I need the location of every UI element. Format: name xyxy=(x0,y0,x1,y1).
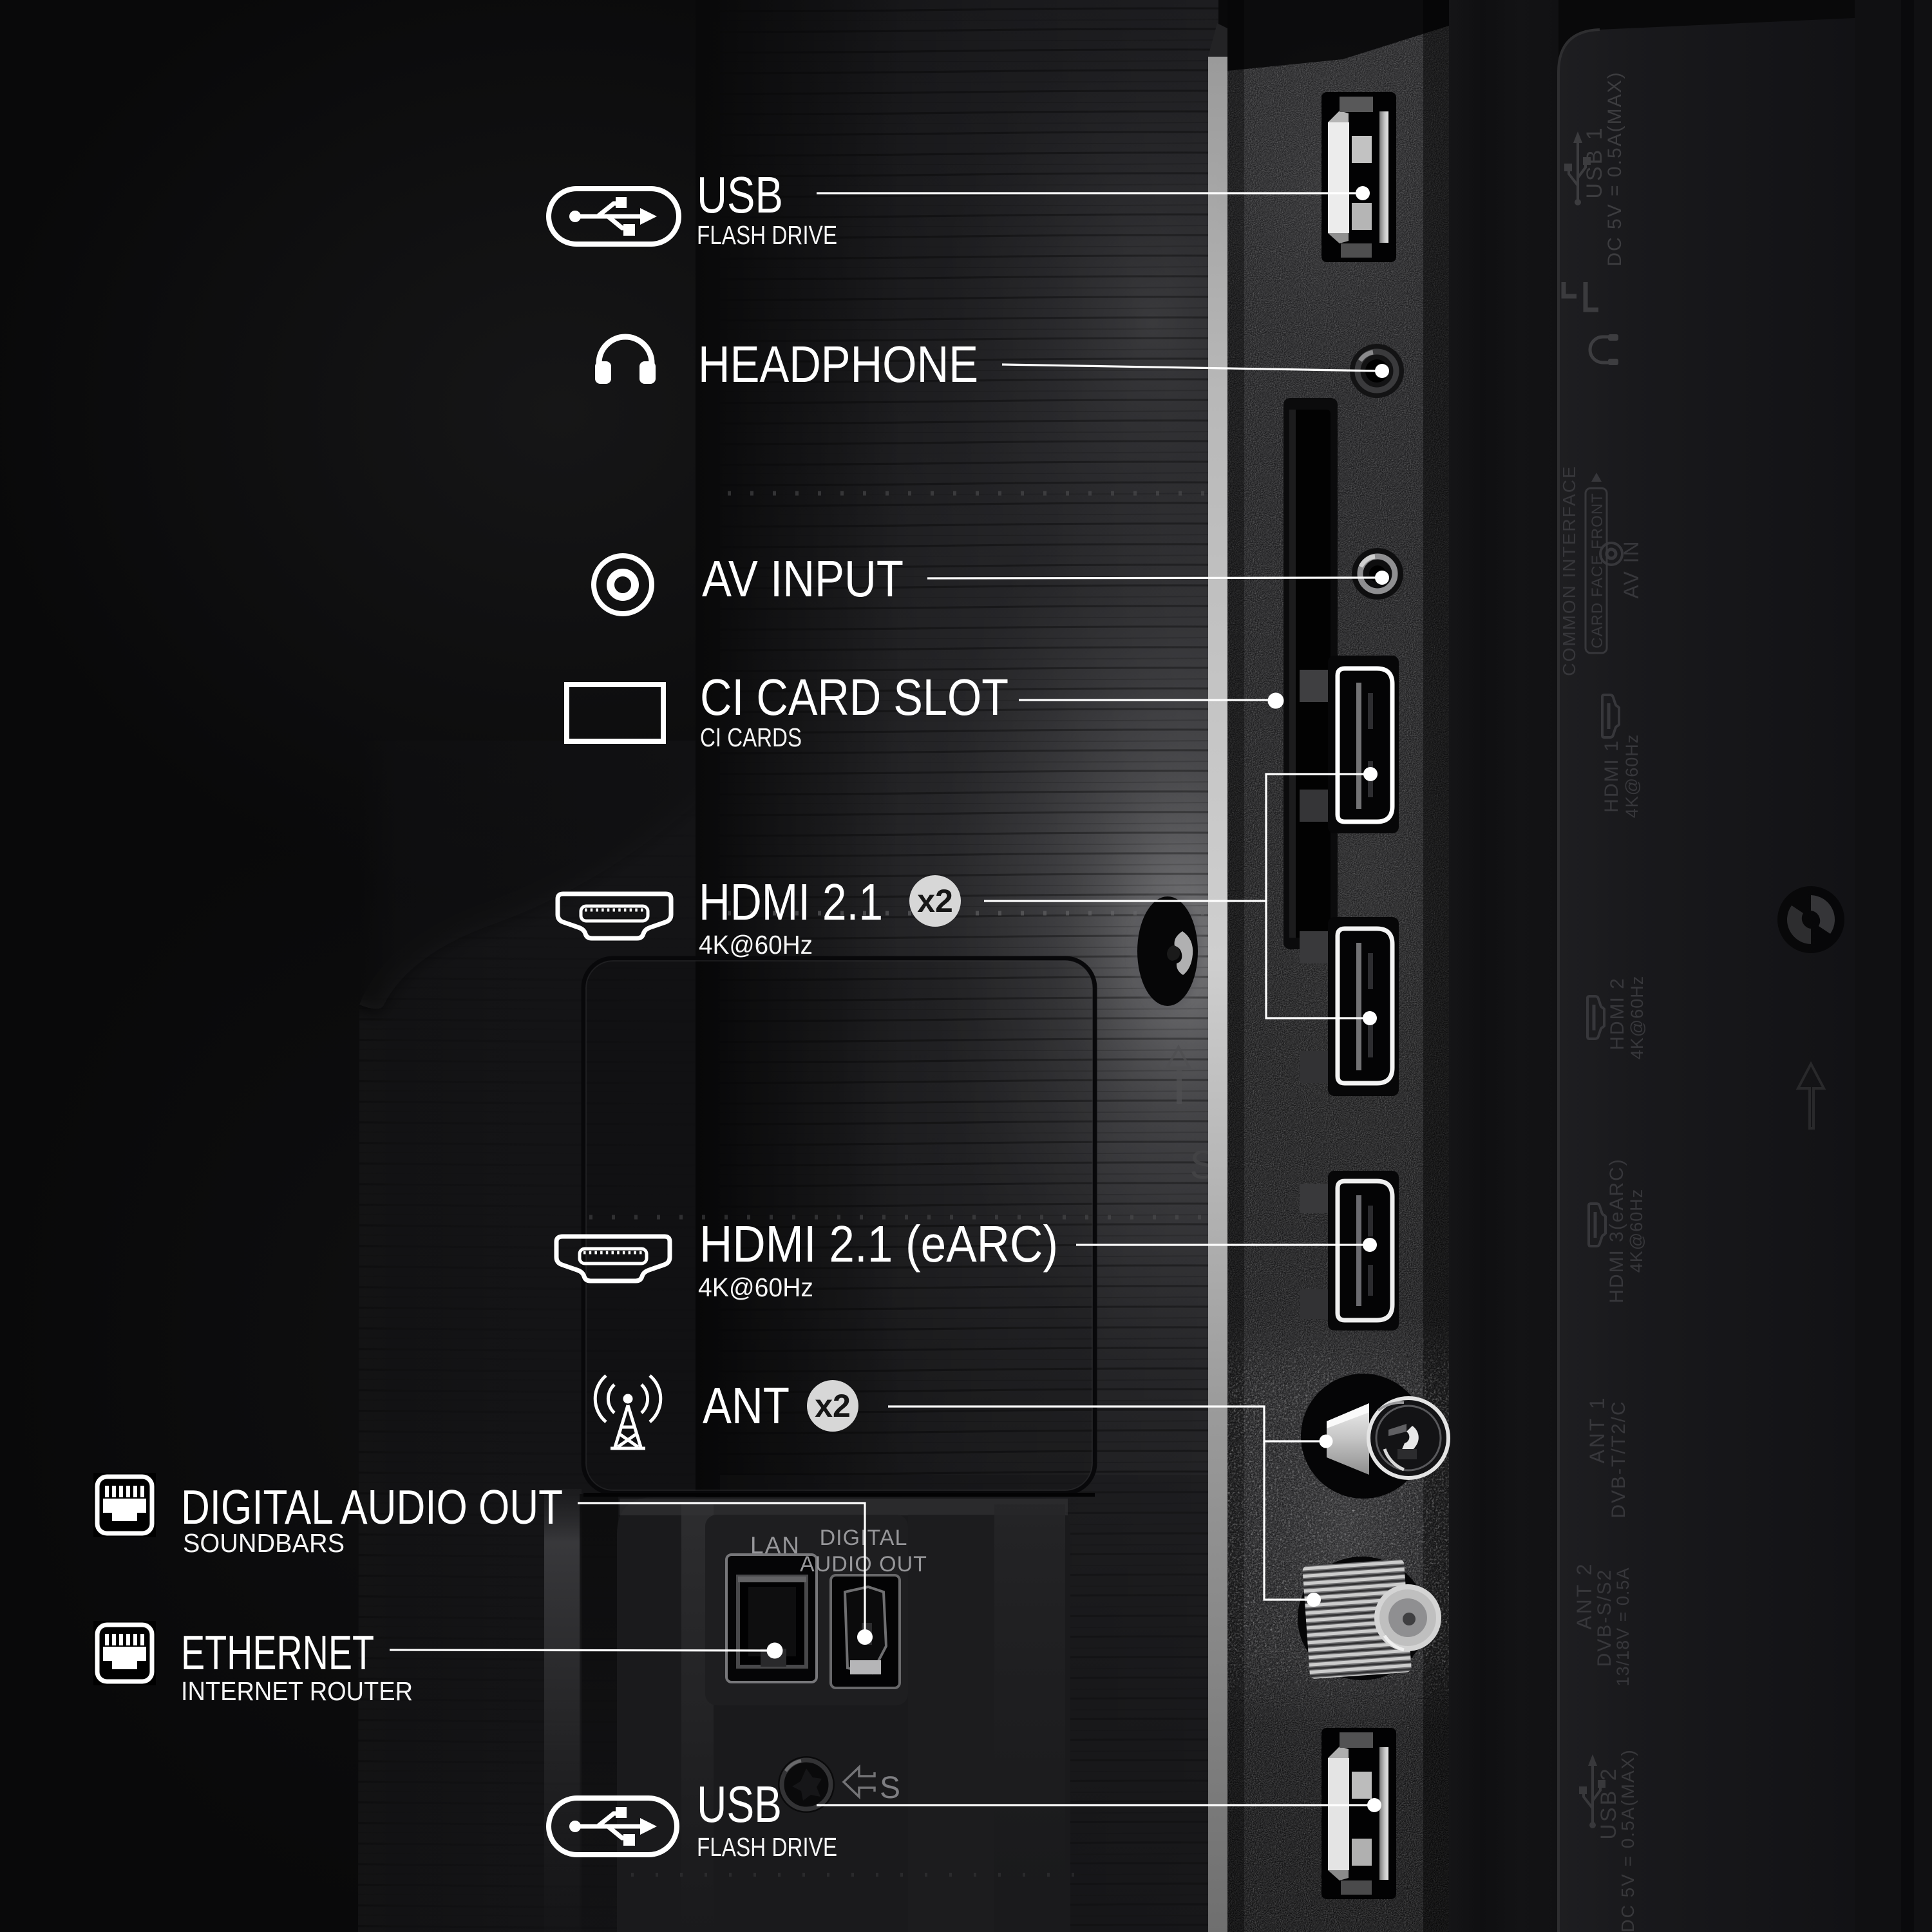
svg-text:COMMON INTERFACE: COMMON INTERFACE xyxy=(1559,465,1579,676)
svg-text:DC 5V = 0.5A(MAX): DC 5V = 0.5A(MAX) xyxy=(1618,1748,1638,1932)
svg-text:DC 5V = 0.5A(MAX): DC 5V = 0.5A(MAX) xyxy=(1604,71,1625,266)
svg-text:USB 1: USB 1 xyxy=(1582,126,1607,198)
svg-text:LAN: LAN xyxy=(750,1532,800,1558)
svg-text:x2: x2 xyxy=(917,883,953,919)
svg-text:DIGITAL: DIGITAL xyxy=(820,1526,908,1550)
svg-text:4K@60Hz: 4K@60Hz xyxy=(698,1273,813,1302)
svg-text:13/18V = 0.5A: 13/18V = 0.5A xyxy=(1613,1567,1633,1687)
svg-text:AV IN: AV IN xyxy=(1620,540,1643,598)
svg-text:x2: x2 xyxy=(815,1388,851,1424)
svg-text:ANT 1: ANT 1 xyxy=(1586,1396,1609,1463)
svg-text:USB: USB xyxy=(697,166,783,223)
svg-text:HDMI 2.1 (eARC): HDMI 2.1 (eARC) xyxy=(699,1215,1058,1273)
svg-text:HDMI 1: HDMI 1 xyxy=(1601,739,1622,813)
svg-text:DVB-S/S2: DVB-S/S2 xyxy=(1594,1569,1615,1667)
svg-text:CI CARD SLOT: CI CARD SLOT xyxy=(700,668,1009,726)
svg-text:S: S xyxy=(880,1771,900,1805)
svg-text:HEADPHONE: HEADPHONE xyxy=(698,336,978,393)
svg-text:DIGITAL AUDIO OUT: DIGITAL AUDIO OUT xyxy=(181,1480,563,1534)
svg-text:4K@60Hz: 4K@60Hz xyxy=(699,930,813,960)
svg-text:ANT 2: ANT 2 xyxy=(1573,1562,1596,1629)
svg-text:USB: USB xyxy=(697,1776,782,1833)
svg-text:ETHERNET: ETHERNET xyxy=(181,1625,374,1680)
svg-text:HDMI 2.1: HDMI 2.1 xyxy=(699,873,883,931)
svg-text:FLASH DRIVE: FLASH DRIVE xyxy=(697,1832,837,1862)
svg-text:AUDIO OUT: AUDIO OUT xyxy=(800,1552,927,1577)
svg-text:FLASH DRIVE: FLASH DRIVE xyxy=(697,220,837,250)
svg-text:4K@60Hz: 4K@60Hz xyxy=(1627,1189,1646,1273)
svg-text:4K@60Hz: 4K@60Hz xyxy=(1627,976,1647,1059)
svg-text:HDMI 2: HDMI 2 xyxy=(1607,977,1628,1050)
svg-text:4K@60Hz: 4K@60Hz xyxy=(1622,734,1642,818)
svg-text:INTERNET ROUTER: INTERNET ROUTER xyxy=(181,1676,413,1706)
svg-text:HDMI 3(eARC): HDMI 3(eARC) xyxy=(1606,1158,1627,1303)
svg-text:CARD FACE FRONT: CARD FACE FRONT xyxy=(1589,493,1606,649)
svg-text:AV INPUT: AV INPUT xyxy=(702,550,904,607)
svg-text:CI CARDS: CI CARDS xyxy=(700,723,802,752)
svg-text:ANT: ANT xyxy=(703,1377,790,1434)
svg-text:SOUNDBARS: SOUNDBARS xyxy=(183,1528,345,1558)
svg-text:DVB-T/T2/C: DVB-T/T2/C xyxy=(1608,1400,1629,1518)
